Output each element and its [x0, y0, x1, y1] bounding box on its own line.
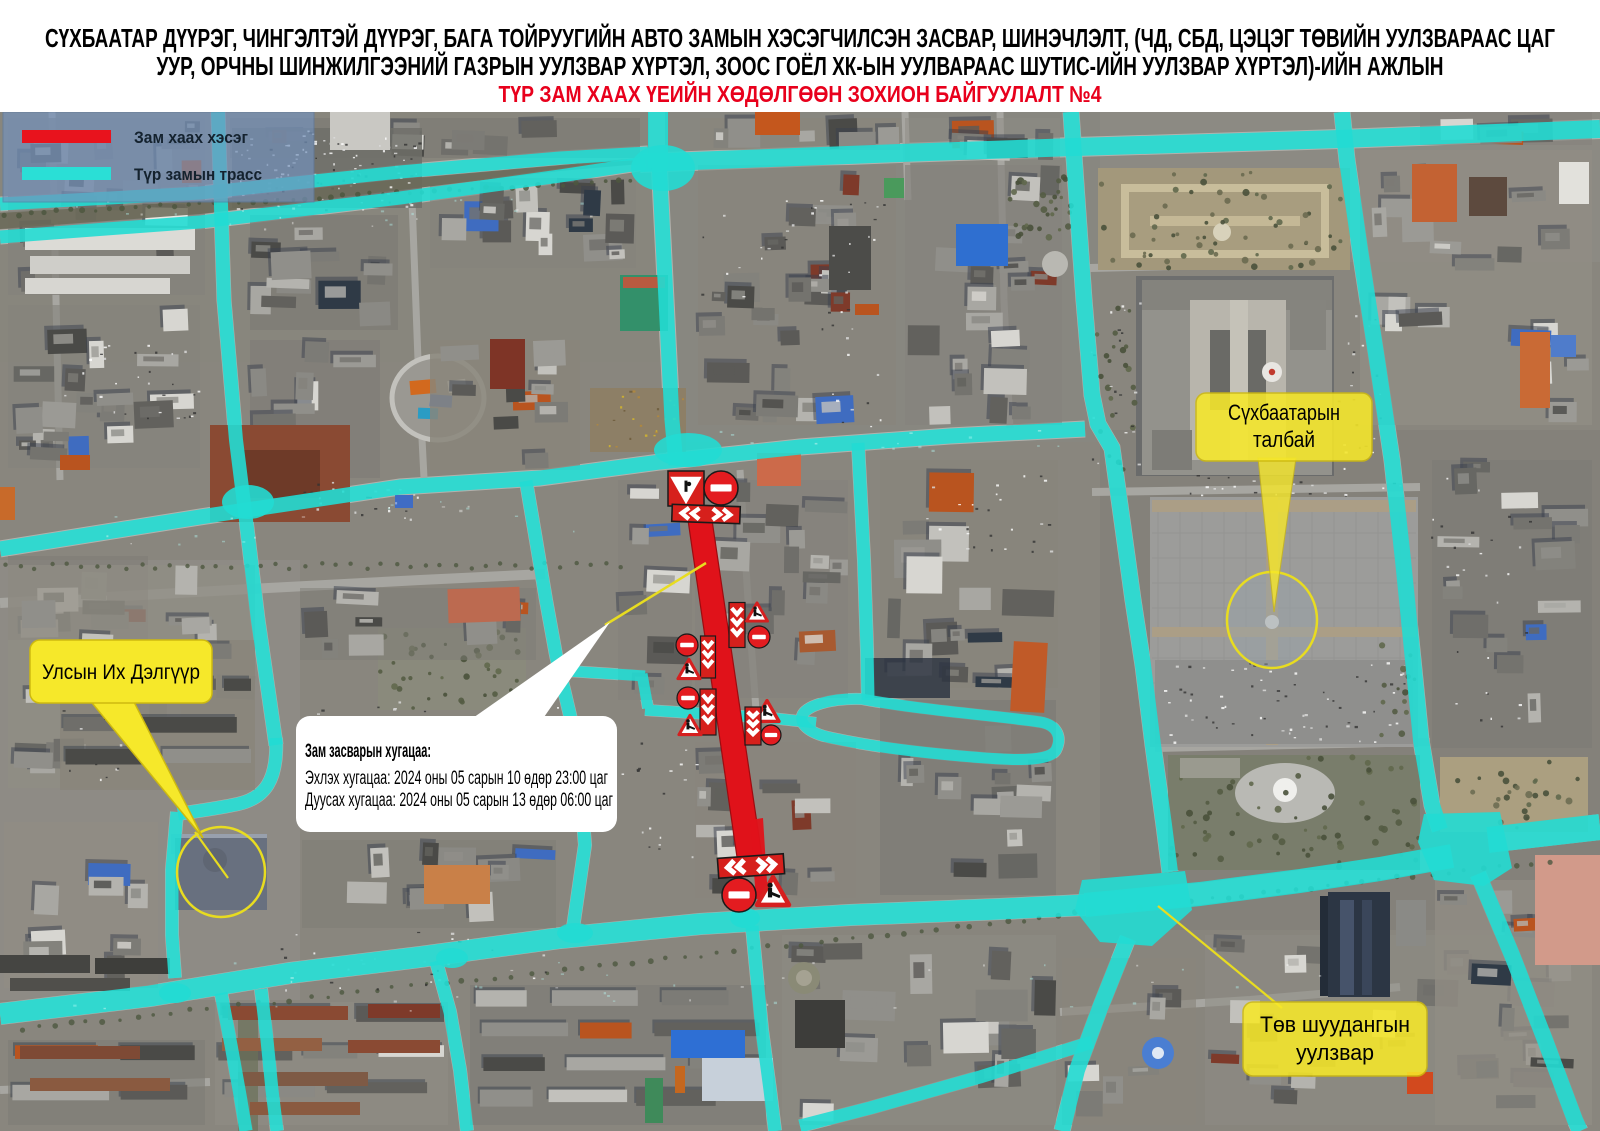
svg-text:Сүхбаатарын: Сүхбаатарын: [1228, 400, 1340, 425]
svg-text:Зам хаах хэсэг: Зам хаах хэсэг: [134, 128, 248, 147]
svg-text:талбай: талбай: [1253, 427, 1315, 452]
svg-text:Төв шуудангын: Төв шуудангын: [1260, 1012, 1410, 1037]
svg-text:Дуусах хугацаа: 2024 оны 05 са: Дуусах хугацаа: 2024 оны 05 сарын 13 өдө…: [305, 790, 613, 811]
svg-text:ТҮР ЗАМ ХААХ ҮЕИЙН ХӨДӨЛГӨӨН З: ТҮР ЗАМ ХААХ ҮЕИЙН ХӨДӨЛГӨӨН ЗОХИОН БАЙГ…: [499, 80, 1102, 107]
svg-text:Зам засварын хугацаа:: Зам засварын хугацаа:: [305, 741, 431, 762]
svg-text:УУР, ОРЧНЫ ШИНЖИЛГЭЭНИЙ ГАЗРЫН: УУР, ОРЧНЫ ШИНЖИЛГЭЭНИЙ ГАЗРЫН УУЛЗВАР Х…: [157, 51, 1444, 81]
svg-text:Түр замын трасс: Түр замын трасс: [134, 165, 262, 184]
svg-text:СҮХБААТАР ДҮҮРЭГ, ЧИНГЭЛТЭЙ Д: СҮХБААТАР ДҮҮРЭГ, ЧИНГЭЛТЭЙ ДҮҮРЭГ, БАГА…: [45, 23, 1555, 53]
svg-text:Улсын Их Дэлгүүр: Улсын Их Дэлгүүр: [42, 661, 200, 684]
svg-text:уулзвар: уулзвар: [1296, 1040, 1374, 1065]
svg-text:Эхлэх хугацаа: 2024 оны 05 сар: Эхлэх хугацаа: 2024 оны 05 сарын 10 өдөр…: [305, 768, 608, 789]
